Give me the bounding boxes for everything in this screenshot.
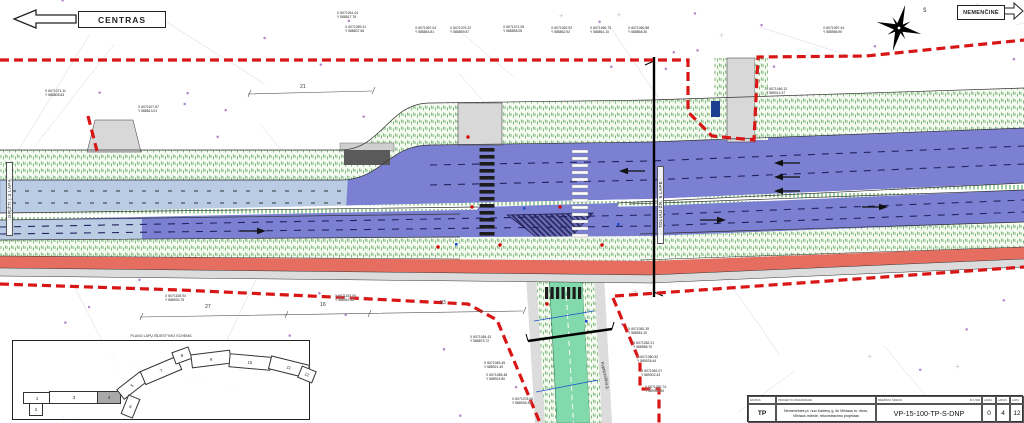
survey-point [610,65,613,68]
destination-right-badge: NEMENČINĖ [957,5,1005,20]
road-corridor [0,88,1024,264]
utility-symbol [523,207,526,210]
inset-title: PLANO LAPŲ IŠDĖSTYMO SCHEMA [12,334,310,338]
pedestrian-crossing-bar [545,287,548,299]
survey-point [98,91,101,94]
survey-point [598,20,601,23]
survey-point [224,109,227,112]
schema-sheet-9: 9 [190,350,231,369]
traffic-signal-symbol [558,205,561,208]
pedestrian-crossing-bar [480,218,495,222]
survey-point [186,92,189,95]
laida-value: 0 [982,404,996,423]
pedestrian-crossing-bar [480,148,495,152]
survey-point [362,115,365,118]
pedestrian-crossing-bar [572,178,588,181]
schema-sheet-3: 3 [49,391,99,404]
pedestrian-crossing-bar [480,183,495,187]
survey-point [138,279,141,282]
pedestrian-crossing-bar [578,287,581,299]
survey-point [1003,299,1006,302]
bus-stop-platform [340,143,394,151]
drawing-code: VP-15-100-TP-S-DNP [876,404,982,423]
laida-header: LAIDA [982,396,996,404]
survey-point [696,49,699,52]
lapu-header: LAPŲ [1010,396,1024,404]
traffic-signal-symbol [466,135,469,138]
schema-sheet-2: 2 [29,403,43,416]
pedestrian-crossing-bar [573,287,576,299]
stage-header: ETAPAS [748,396,776,404]
lapas-header: LAPAS [996,396,1010,404]
pedestrian-crossing-bar [480,169,495,173]
traffic-signal-symbol [470,205,473,208]
survey-line [150,12,265,85]
traffic-signal-symbol [600,243,603,246]
survey-cross [559,14,563,18]
survey-point [673,51,676,54]
pedestrian-crossing-bar [572,227,588,230]
survey-point [1013,58,1016,61]
road-reconstruction-plan-sheet: Kuprijoniškių g. [0,0,1024,423]
existing-pavement-lower [0,219,142,240]
pedestrian-crossing-bar [480,155,495,159]
survey-point [443,348,446,351]
pedestrian-crossing-bar [572,185,588,188]
survey-cross [633,289,637,293]
survey-line [759,27,859,59]
direction-arrow-left-icon [14,10,76,28]
north-stub-pavement [458,103,502,145]
survey-point [773,65,776,68]
pedestrian-crossing-bar [480,225,495,229]
survey-point [874,45,877,48]
pedestrian-crossing-bar [480,211,495,215]
utility-symbol [585,320,588,323]
pedestrian-crossing-bar [567,287,570,299]
schema-sheet-4: 4 [97,391,121,404]
parked-car-symbol [711,101,720,117]
survey-cross [868,354,872,358]
survey-point [965,328,968,331]
pedestrian-crossing-bar [572,206,588,209]
survey-cross [955,364,959,368]
survey-point [459,414,462,417]
pedestrian-crossing-bar [572,213,588,216]
sheet-layout-inset: PLANO LAPŲ IŠDĖSTYMO SCHEMA 123456789101… [12,334,310,420]
pedestrian-crossing-bar [551,287,554,299]
inset-frame: 123456789101112 [12,340,310,420]
drawing-code-header-label: BRĖŽINIO ŠIFRAS [878,398,902,402]
survey-point [760,24,763,27]
drawing-code-header: BRĖŽINIO ŠIFRAS M 1:500 [876,396,982,404]
survey-cross [720,33,724,37]
north-label: Š [923,8,926,14]
schema-sheet-10: 10 [228,353,271,371]
survey-point [216,136,219,139]
sheet-nav-right-label: TOLIAU ŽR. 5 LAPE [657,166,664,244]
drawing-scale: M 1:500 [970,398,980,402]
pedestrian-crossing-bar [480,197,495,201]
stage-value: TP [748,404,776,423]
traffic-signal-symbol [545,302,548,305]
traffic-signal-symbol [498,243,501,246]
pedestrian-crossing-bar [480,204,495,208]
survey-point [919,369,922,372]
survey-point [183,103,186,106]
pedestrian-crossing-bar [572,192,588,195]
traffic-signal-symbol [436,245,439,248]
compass-north-icon [871,0,928,57]
pedestrian-crossing-bar [480,232,495,236]
survey-point [61,0,64,1]
utility-symbol [455,243,458,246]
utility-symbol [617,223,620,226]
pedestrian-crossing-bar [572,234,588,237]
survey-point [665,68,668,71]
pedestrian-crossing-bar [556,287,559,299]
destination-left-badge: CENTRAS [78,11,166,28]
right-stub-verge-west [714,58,727,140]
project-name: Nemenčinės pl. nuo Kairėnų g. iki Vilnia… [776,404,876,423]
survey-point [263,37,266,40]
pedestrian-crossing-bar [562,287,565,299]
survey-point [88,306,91,309]
pedestrian-crossing-bar [572,150,588,153]
pedestrian-crossing-bar [480,162,495,166]
bus-stop-shelter [344,150,390,165]
pedestrian-crossing-bar [480,176,495,180]
project-header: PROJEKTO PAVADINIMAS [776,396,876,404]
survey-cross [617,13,621,17]
survey-point [348,20,351,23]
pedestrian-crossing-bar [572,199,588,202]
survey-point [320,63,323,66]
sheet-nav-left-label: GRĮŽTI Į 3 LAPĄ [6,162,13,236]
pedestrian-crossing-bar [572,220,588,223]
direction-arrow-right-icon [1004,3,1023,19]
pedestrian-crossing-bar [572,171,588,174]
lapu-value: 12 [1010,404,1024,423]
pedestrian-crossing-bar [572,157,588,160]
lapas-value: 4 [996,404,1010,423]
pedestrian-crossing-bar [572,164,588,167]
title-block: ETAPAS PROJEKTO PAVADINIMAS BRĖŽINIO ŠIF… [747,395,1023,422]
right-stub-pavement [727,58,755,142]
survey-point [515,386,518,389]
pedestrian-crossing-bar [480,190,495,194]
survey-point [64,321,67,324]
survey-point [318,292,321,295]
survey-point [694,12,697,15]
survey-line [463,34,513,77]
